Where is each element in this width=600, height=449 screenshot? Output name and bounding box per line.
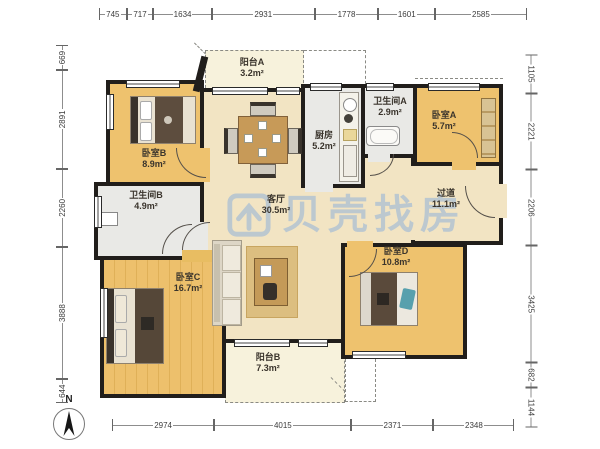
window-bedroom-b-top xyxy=(126,80,180,88)
dining-chair-bottom xyxy=(250,164,276,178)
plate xyxy=(258,148,267,157)
room-area: 3.2m² xyxy=(219,68,285,79)
window-bedroom-c-left xyxy=(100,288,108,338)
compass-needle-icon xyxy=(54,409,84,439)
dimension-column-right: 11052221220634256821144 xyxy=(526,55,538,416)
room-name: 阳台B xyxy=(256,352,281,362)
room-name: 卧室B xyxy=(142,148,167,158)
floorplan-canvas: 74571716342931177816012585 2974401523712… xyxy=(0,0,600,449)
sofa-back xyxy=(214,244,220,322)
dimension-value: 4015 xyxy=(273,421,293,430)
window-bedroom-d-bottom xyxy=(352,351,406,359)
window-kitchen-top xyxy=(310,83,342,91)
dashed-arrow-top-left xyxy=(194,42,206,54)
dimension-value: 2891 xyxy=(58,109,67,129)
dimension-value: 2585 xyxy=(471,10,491,19)
room-label-bedroom-b: 卧室B 8.9m² xyxy=(126,148,182,170)
bed-bedroom-d xyxy=(360,272,418,326)
dining-chair-left xyxy=(224,128,238,154)
room-area: 5.7m² xyxy=(416,121,472,132)
room-name: 客厅 xyxy=(267,194,285,204)
room-area: 10.8m² xyxy=(368,257,424,268)
dimension-value: 2260 xyxy=(58,198,67,218)
plate xyxy=(258,121,267,130)
dimension-segment: 2206 xyxy=(526,170,538,246)
dimension-value: 669 xyxy=(58,50,67,65)
sofa-cushion xyxy=(222,245,241,271)
room-name: 卧室D xyxy=(384,246,409,256)
dimension-row-top: 74571716342931177816012585 xyxy=(99,8,527,20)
compass-north-label: N xyxy=(46,394,92,406)
balcony-b-dashed-extension xyxy=(345,359,376,402)
compass-circle xyxy=(53,408,85,440)
dimension-value: 2206 xyxy=(527,198,536,218)
dimension-segment: 3425 xyxy=(526,246,538,363)
dimension-value: 1778 xyxy=(337,10,357,19)
sofa-cushion xyxy=(222,299,241,325)
dimension-segment: 669 xyxy=(56,45,68,70)
dimension-segment: 1634 xyxy=(153,8,211,20)
dining-chair-top xyxy=(250,102,276,116)
dimension-segment: 1144 xyxy=(526,387,538,427)
dimension-value: 745 xyxy=(105,10,120,19)
dimension-value: 3425 xyxy=(527,294,536,314)
room-name: 厨房 xyxy=(315,130,333,140)
door-opening-entry xyxy=(493,184,507,218)
dimension-value: 2931 xyxy=(253,10,273,19)
bed-bedroom-c xyxy=(106,288,164,364)
dimension-segment: 4015 xyxy=(214,419,351,431)
balcony-a-dashed-extension xyxy=(304,50,366,84)
window-bathroom-a-top xyxy=(366,83,394,91)
dimension-segment: 2585 xyxy=(435,8,526,20)
dimension-segment: 2260 xyxy=(56,169,68,247)
coffee-table xyxy=(254,258,288,306)
dimension-value: 1601 xyxy=(397,10,417,19)
room-area: 11.1m² xyxy=(420,199,472,210)
sofa xyxy=(212,240,242,326)
headboard xyxy=(131,97,138,143)
room-label-bedroom-a: 卧室A 5.7m² xyxy=(416,110,472,132)
dimension-value: 1144 xyxy=(527,398,536,417)
compass: N xyxy=(46,394,92,446)
room-name: 卧室A xyxy=(432,110,457,120)
bathtub-inner xyxy=(370,129,398,144)
opening-living-hallway xyxy=(405,166,419,240)
door-opening-kitchen xyxy=(305,180,333,192)
pillow xyxy=(115,329,127,357)
bed-decor xyxy=(141,317,154,330)
room-label-balcony-b: 阳台B 7.3m² xyxy=(242,352,294,374)
room-area: 7.3m² xyxy=(242,363,294,374)
window-living-bottom-2 xyxy=(298,339,328,347)
dimension-row-bottom: 2974401523712348 xyxy=(112,419,514,431)
dimension-segment: 2931 xyxy=(212,8,315,20)
room-name: 过道 xyxy=(437,188,455,198)
window-living-top-1 xyxy=(212,87,268,95)
dimension-value: 2348 xyxy=(464,421,484,430)
dimension-value: 682 xyxy=(527,367,536,382)
room-label-living: 客厅 30.5m² xyxy=(250,194,302,216)
dimension-value: 2371 xyxy=(383,421,403,430)
dimension-segment: 2221 xyxy=(526,94,538,170)
headboard xyxy=(107,289,114,363)
pillow xyxy=(140,122,152,141)
window-living-bottom-1 xyxy=(234,339,290,347)
plate xyxy=(244,134,253,143)
pillow xyxy=(140,101,152,120)
dimension-column-left: 644388822602891669 xyxy=(56,55,68,403)
room-name: 卫生间A xyxy=(373,96,407,106)
dimension-segment: 2974 xyxy=(112,419,214,431)
dimension-value: 3888 xyxy=(58,303,67,323)
plate xyxy=(272,134,281,143)
room-label-hallway: 过道 11.1m² xyxy=(420,188,472,210)
room-label-bathroom-b: 卫生间B 4.9m² xyxy=(116,190,176,212)
wardrobe-bedroom-a xyxy=(481,98,496,158)
kitchen-pot xyxy=(344,114,353,123)
pillow xyxy=(115,295,127,323)
dimension-segment: 2348 xyxy=(433,419,514,431)
room-area: 16.7m² xyxy=(162,283,214,294)
dimension-segment: 1778 xyxy=(315,8,378,20)
dimension-value: 2221 xyxy=(527,122,536,142)
headboard xyxy=(361,273,371,325)
dimension-segment: 682 xyxy=(526,362,538,387)
bed-decor xyxy=(164,116,172,124)
dimension-value: 2974 xyxy=(153,421,173,430)
room-area: 8.9m² xyxy=(126,159,182,170)
window-bedroom-b-left xyxy=(106,94,114,130)
table-decor xyxy=(260,265,272,277)
dimension-segment: 745 xyxy=(99,8,127,20)
room-area: 30.5m² xyxy=(250,205,302,216)
dimension-segment: 717 xyxy=(127,8,154,20)
dimension-segment: 1601 xyxy=(378,8,435,20)
dimension-segment: 2891 xyxy=(56,70,68,169)
window-living-top-2 xyxy=(276,87,300,95)
room-label-bathroom-a: 卫生间A 2.9m² xyxy=(364,96,416,118)
dimension-value: 717 xyxy=(132,10,147,19)
pillow-teal xyxy=(399,288,416,310)
dimension-segment: 2371 xyxy=(351,419,433,431)
bathtub xyxy=(366,126,400,146)
bedroom-a-dashed-line xyxy=(415,78,503,79)
bed-bedroom-b xyxy=(130,96,196,144)
room-name: 卧室C xyxy=(176,272,201,282)
room-area: 2.9m² xyxy=(364,107,416,118)
room-label-balcony-a: 阳台A 3.2m² xyxy=(219,57,285,79)
room-name: 阳台A xyxy=(240,57,265,67)
dimension-value: 1634 xyxy=(173,10,193,19)
room-label-bedroom-d: 卧室D 10.8m² xyxy=(368,246,424,268)
room-area: 4.9m² xyxy=(116,201,176,212)
kitchen-sink xyxy=(343,98,357,112)
room-label-bedroom-c: 卧室C 16.7m² xyxy=(162,272,214,294)
table-decor-dark xyxy=(263,283,277,300)
window-bedroom-a-top xyxy=(428,83,480,91)
sofa-cushion xyxy=(222,272,241,298)
room-area: 5.2m² xyxy=(300,141,348,152)
dimension-segment: 3888 xyxy=(56,247,68,380)
room-label-kitchen: 厨房 5.2m² xyxy=(300,130,348,152)
door-opening-bedroom-a xyxy=(452,156,476,170)
window-bathroom-b-left xyxy=(94,196,102,228)
dimension-segment: 1105 xyxy=(526,55,538,94)
dimension-value: 1105 xyxy=(527,64,536,83)
room-name: 卫生间B xyxy=(129,190,163,200)
bed-decor xyxy=(377,293,389,305)
